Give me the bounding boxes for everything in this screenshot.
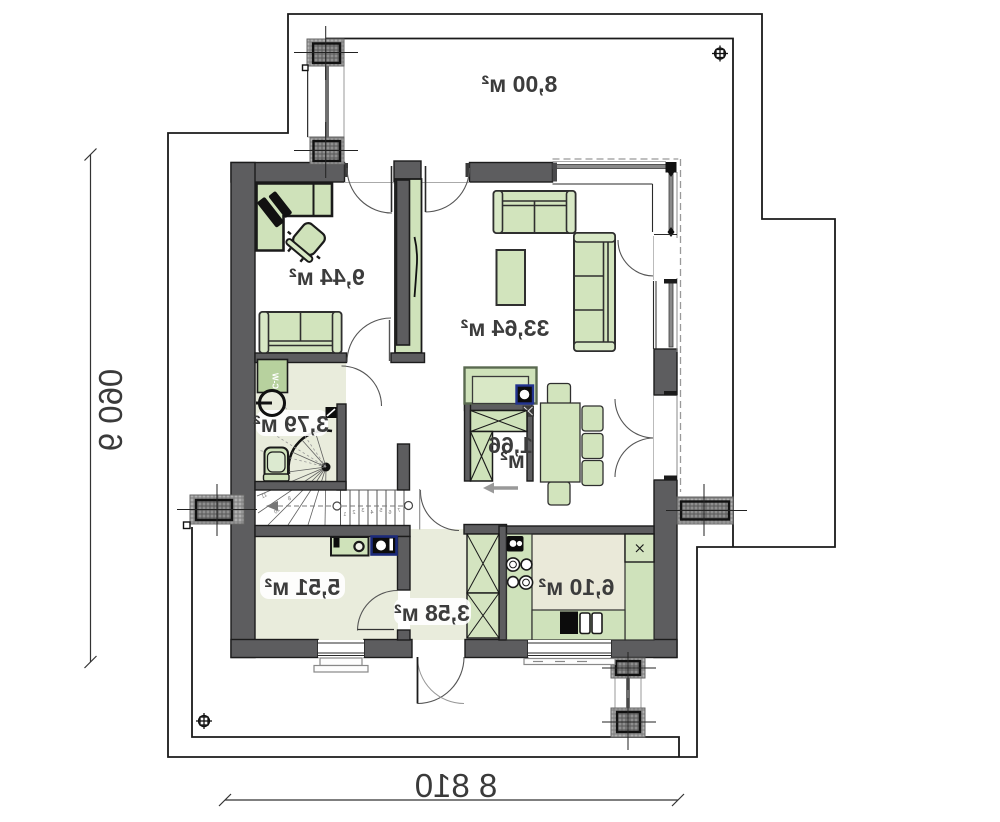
svg-text:5: 5 — [379, 508, 382, 514]
svg-text:4: 4 — [370, 510, 373, 516]
svg-text:м²: м² — [500, 447, 525, 473]
svg-text:2: 2 — [352, 510, 355, 516]
svg-text:1: 1 — [343, 512, 346, 518]
svg-text:8,00 м²: 8,00 м² — [481, 71, 557, 97]
svg-text:6: 6 — [388, 510, 391, 516]
svg-text:5,51 м²: 5,51 м² — [264, 574, 340, 600]
svg-text:6,10 м²: 6,10 м² — [538, 574, 614, 600]
svg-text:3: 3 — [361, 508, 364, 514]
svg-text:3,79 м²: 3,79 м² — [253, 411, 329, 437]
svg-text:6 090: 6 090 — [92, 369, 129, 452]
svg-text:9,44 м²: 9,44 м² — [289, 264, 365, 290]
svg-text:7: 7 — [397, 508, 400, 514]
svg-text:3,58 м²: 3,58 м² — [394, 600, 470, 626]
svg-text:C-W: C-W — [271, 373, 280, 389]
svg-text:33,64 м²: 33,64 м² — [460, 315, 549, 341]
svg-text:8 810: 8 810 — [415, 767, 498, 804]
